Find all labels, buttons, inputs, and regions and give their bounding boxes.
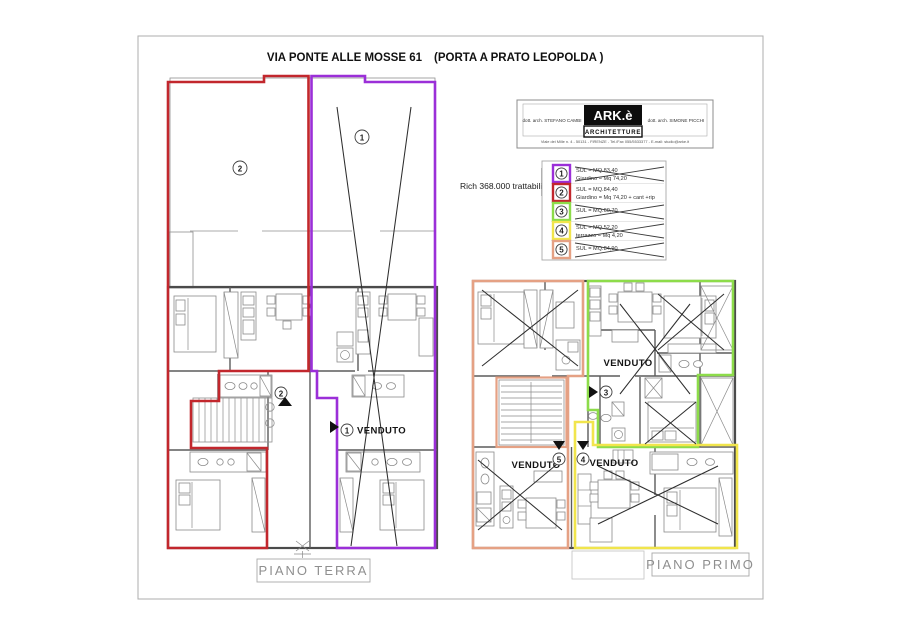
terra-furniture-top <box>174 292 433 362</box>
venduto-label-4: VENDUTO <box>589 458 638 469</box>
legend-num-3: 3 <box>559 207 564 216</box>
terra-stairs <box>193 398 272 442</box>
firm-name-right: dott. arch. SIMONE PICCHI <box>648 118 705 123</box>
venduto-label-3: VENDUTO <box>603 358 652 369</box>
legend-num-2: 2 <box>559 188 564 197</box>
svg-text:PIANO PRIMO: PIANO PRIMO <box>646 557 755 572</box>
svg-text:5: 5 <box>557 455 562 464</box>
legend-row-3: 3 SUL = MQ.60,70 <box>551 203 664 222</box>
piano-primo-plan: VENDUTO VENDUTO VENDUTO 3 5 4 PIANO PRIM… <box>473 281 755 579</box>
entry-marker-4: 4 <box>577 441 589 465</box>
terra-bath-left <box>220 375 272 397</box>
drawing-sheet: VIA PONTE ALLE MOSSE 61 (PORTA A PRATO L… <box>0 0 900 636</box>
title-block: ARK.è ARCHITETTURE dott. arch. STEFANO C… <box>517 100 713 148</box>
piano-primo-label: PIANO PRIMO <box>646 553 755 576</box>
garden-walls <box>169 78 435 288</box>
svg-text:1: 1 <box>345 426 350 435</box>
entrance-arrow-icon <box>589 386 598 398</box>
column-symbol <box>266 403 274 411</box>
svg-text:3: 3 <box>604 388 609 397</box>
price-note: Rich 368.000 trattabili <box>460 181 542 191</box>
entry-door-symbol <box>294 541 311 558</box>
entrance-arrow-icon <box>577 441 589 450</box>
legend-row-1: 1 SUL = MQ.83,40 Giardino = Mq 74,20 <box>551 165 664 184</box>
svg-text:2: 2 <box>238 164 243 173</box>
entrance-arrow-icon <box>553 441 565 450</box>
legend-line1-2: SUL = MQ.84,40 <box>576 187 618 193</box>
terra-bath-right <box>352 375 404 397</box>
firm-address: Viale dei Mille n. 4 - 50131 - FIRENZE -… <box>541 139 690 144</box>
piano-terra-plan: 2 1 2 1 VENDUTO PIANO TERRA <box>168 76 437 582</box>
firm-banner: ARCHITETTURE <box>585 130 641 136</box>
entry-marker-2: 2 <box>275 387 292 406</box>
firm-logo: ARK.è <box>593 108 632 123</box>
unit-5-stair-outline <box>497 378 567 448</box>
venduto-label-1: VENDUTO <box>357 426 406 437</box>
legend-row-5: 5 SUL = MQ.84,90 <box>553 241 664 258</box>
legend-num-5: 5 <box>559 245 564 254</box>
svg-text:2: 2 <box>279 389 284 398</box>
legend-row-4: 4 SUL = MQ.52,20 terrazzo = Mq 4,20 <box>551 222 664 241</box>
svg-text:PIANO TERRA: PIANO TERRA <box>259 563 369 578</box>
piano-terra-label: PIANO TERRA <box>257 559 370 582</box>
legend-num-1: 1 <box>559 169 564 178</box>
garden-2-number: 2 <box>233 161 247 175</box>
unit-1-outline <box>312 76 436 548</box>
legend-row-2: 2 SUL = MQ.84,40 Giardino = Mq 74,20 + c… <box>551 184 664 203</box>
page-title: VIA PONTE ALLE MOSSE 61 <box>267 52 423 64</box>
terrace-outline <box>572 551 644 579</box>
garden-1-number: 1 <box>355 130 369 144</box>
svg-text:1: 1 <box>360 133 365 142</box>
page-subtitle: (PORTA A PRATO LEOPOLDA ) <box>434 52 604 64</box>
legend: 1 SUL = MQ.83,40 Giardino = Mq 74,20 2 S… <box>542 161 666 260</box>
plan-drawing: VIA PONTE ALLE MOSSE 61 (PORTA A PRATO L… <box>0 0 900 636</box>
firm-name-left: dott. arch. STEFANO CAMBI <box>523 118 582 123</box>
legend-line2-2: Giardino = Mq 74,20 + cant +rip <box>576 195 655 201</box>
terra-furniture-bottom <box>176 452 424 532</box>
svg-text:4: 4 <box>581 455 586 464</box>
column-symbol <box>266 419 274 427</box>
legend-num-4: 4 <box>559 226 564 235</box>
primo-stairs <box>499 380 564 445</box>
